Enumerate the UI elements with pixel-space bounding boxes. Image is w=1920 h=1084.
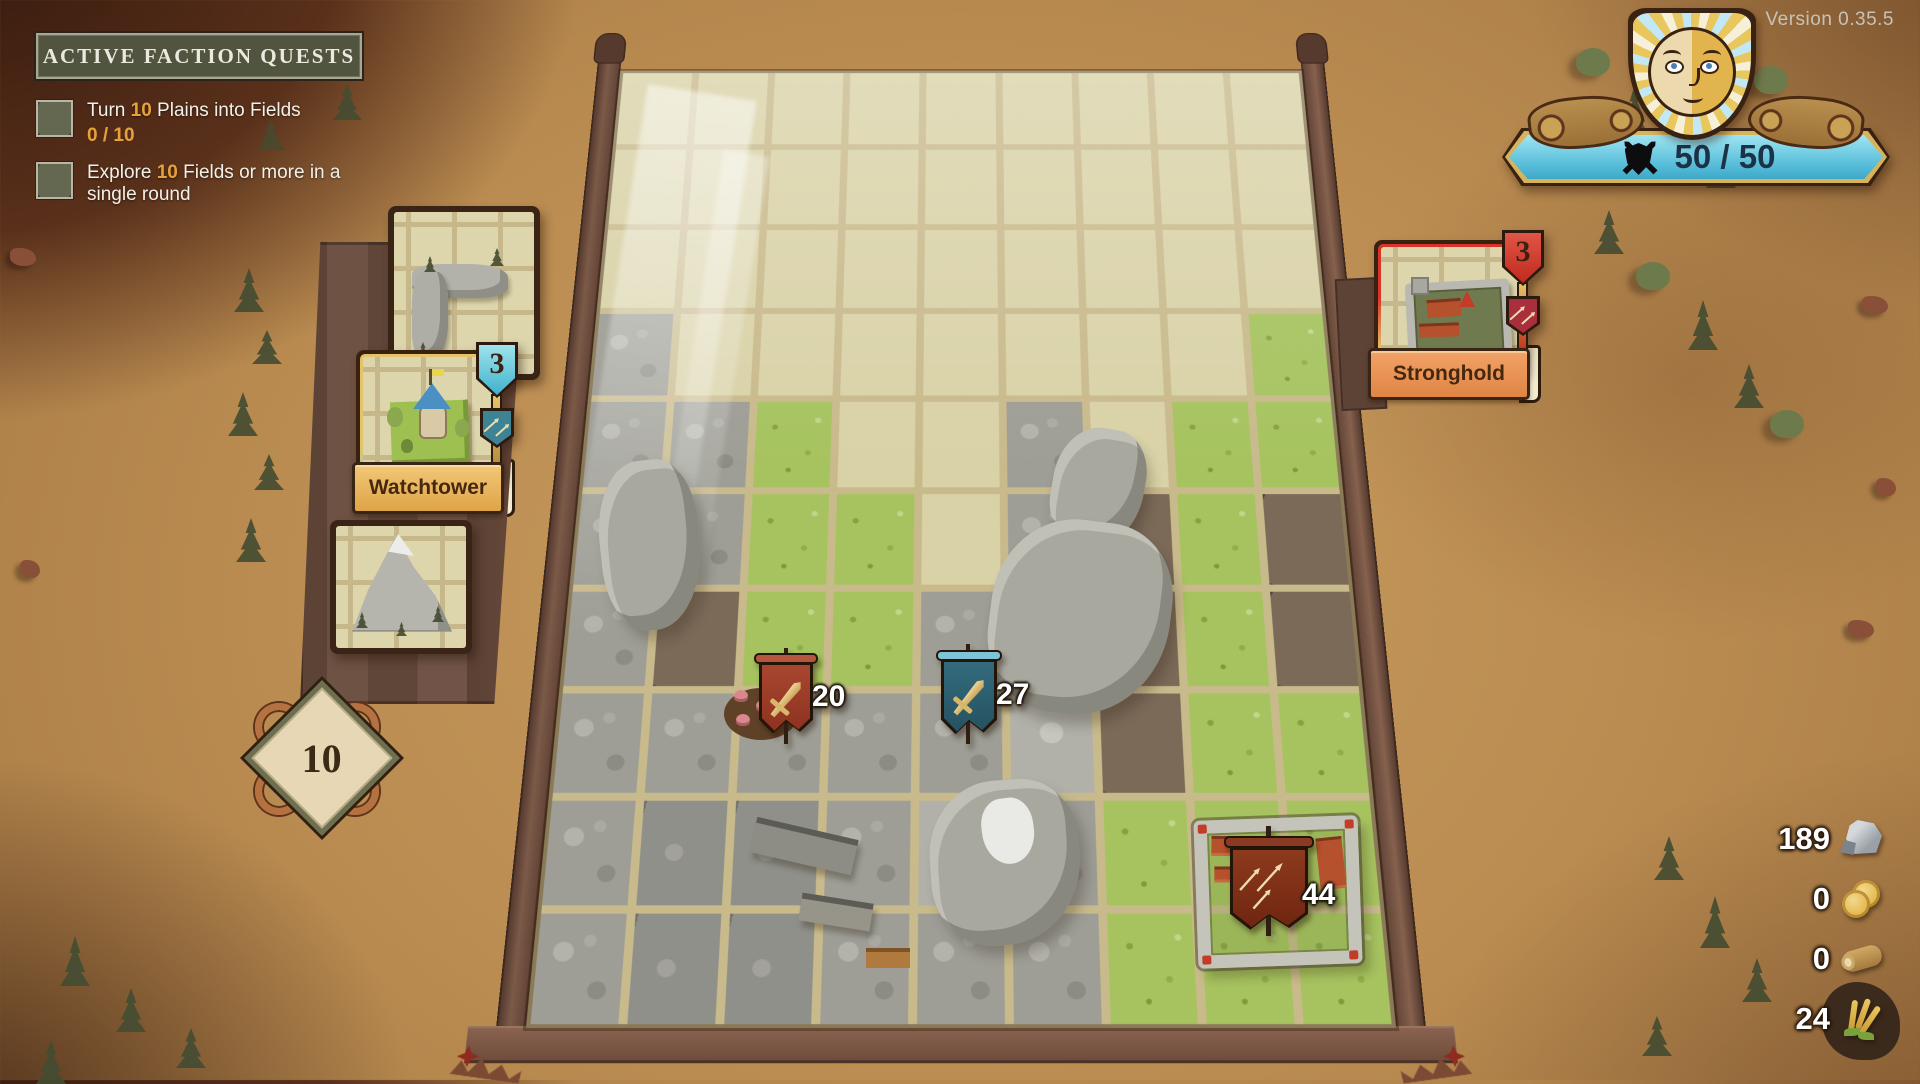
board-tile-empty[interactable] <box>1154 73 1228 144</box>
hp-value: 50 / 50 <box>1675 138 1776 176</box>
board-tile-empty[interactable] <box>840 314 916 396</box>
mushroom <box>734 690 748 702</box>
tower-roof-art <box>413 383 451 409</box>
board-tile-empty[interactable] <box>1005 314 1081 396</box>
sword-icon <box>952 677 987 716</box>
board-tile-empty[interactable] <box>1168 314 1248 396</box>
castle-roof-art <box>1419 322 1459 337</box>
board-tile-empty[interactable] <box>616 73 692 144</box>
board-tile-empty[interactable] <box>675 314 755 396</box>
board-tile-empty[interactable] <box>923 314 998 396</box>
board-tile-grass[interactable] <box>1107 914 1198 1025</box>
board-tile-empty[interactable] <box>1163 230 1241 308</box>
sun-face <box>1648 27 1736 117</box>
board-tile-empty[interactable] <box>1078 73 1151 144</box>
board-tile-village[interactable] <box>627 914 721 1025</box>
board-tile-rock[interactable] <box>553 693 644 792</box>
bush-art <box>401 439 413 453</box>
board-tile-empty[interactable] <box>762 230 838 308</box>
castle-roof-art <box>1426 298 1461 318</box>
fort-flag <box>1198 824 1207 833</box>
tree-decoration <box>1642 1016 1672 1056</box>
board-tile-empty[interactable] <box>1084 230 1160 308</box>
bush-decoration <box>1576 48 1610 76</box>
board-tile-empty[interactable] <box>758 314 836 396</box>
board-tile-rock[interactable] <box>542 801 635 906</box>
board-tile-grass[interactable] <box>1278 693 1369 792</box>
board-tile-grass[interactable] <box>747 494 829 584</box>
quest-checkbox-icon <box>36 100 73 137</box>
tree-decoration <box>116 988 146 1032</box>
board-tile-empty[interactable] <box>681 230 759 308</box>
rock-art <box>412 272 448 358</box>
tree-decoration <box>60 936 90 986</box>
resource-gold-value: 0 <box>1700 881 1830 917</box>
rock-decoration <box>1862 296 1888 314</box>
bush-art <box>490 248 504 266</box>
board-tile-empty[interactable] <box>922 402 999 488</box>
resource-gold: 0 <box>1700 878 1884 920</box>
tree-decoration <box>1654 836 1684 880</box>
resource-stone-value: 189 <box>1700 821 1830 857</box>
board-tile-empty[interactable] <box>925 150 997 224</box>
rock-decoration <box>10 248 36 266</box>
tree-decoration <box>236 518 266 562</box>
unit-strength: 27 <box>996 678 1029 712</box>
board-tile-empty[interactable] <box>771 73 844 144</box>
board-tile-empty[interactable] <box>1002 73 1073 144</box>
quest-text: Explore 10 Fields or more in a single ro… <box>87 162 387 207</box>
card-mountain-tile[interactable] <box>330 520 472 654</box>
board-tile-grass[interactable] <box>1103 801 1192 906</box>
resource-wood: 0 <box>1700 938 1884 980</box>
gold-coins-icon <box>1840 878 1884 920</box>
rock-decoration <box>1848 620 1874 638</box>
tree-decoration <box>1688 300 1718 350</box>
resource-wheat-value: 24 <box>1700 1001 1830 1037</box>
card-name-plate: Watchtower <box>352 462 504 514</box>
tree-decoration <box>234 268 264 312</box>
board-tile-rock[interactable] <box>530 914 626 1025</box>
sun-emblem-icon <box>1628 8 1756 140</box>
board-tile-dirt[interactable] <box>1263 494 1349 584</box>
unit-strength: 44 <box>1302 878 1335 912</box>
resource-wood-value: 0 <box>1700 941 1830 977</box>
bush-art <box>387 407 403 427</box>
board-tile-empty[interactable] <box>1230 73 1306 144</box>
arrow-icon <box>1251 887 1273 910</box>
board-tile-empty[interactable] <box>843 230 917 308</box>
board-tile-empty[interactable] <box>838 402 916 488</box>
quest-progress: 0 / 10 <box>87 125 301 147</box>
board-tile-empty[interactable] <box>767 150 841 224</box>
deck-count: 10 <box>302 735 342 782</box>
board-tile-grass[interactable] <box>1189 693 1278 792</box>
board-tile-empty[interactable] <box>1086 314 1164 396</box>
quest-item: Explore 10 Fields or more in a single ro… <box>36 162 396 207</box>
board-tile-grass[interactable] <box>1178 494 1262 584</box>
fort-flag <box>1202 955 1211 964</box>
board-tile-empty[interactable] <box>846 150 919 224</box>
board-tile-grass[interactable] <box>1183 591 1269 685</box>
tree-decoration <box>252 330 282 364</box>
board-tile-empty[interactable] <box>1004 230 1078 308</box>
board-tile-empty[interactable] <box>1242 230 1322 308</box>
board-tile-dirt[interactable] <box>1270 591 1358 685</box>
board-tile-dirt[interactable] <box>1099 693 1185 792</box>
board-tile-village[interactable] <box>724 914 815 1025</box>
card-name-plate: Stronghold <box>1368 348 1530 400</box>
quest-item: Turn 10 Plains into Fields 0 / 10 <box>36 100 396 147</box>
arrow-icon <box>1255 861 1285 893</box>
rock-decoration <box>20 560 40 578</box>
castle-turret-art <box>1411 277 1429 295</box>
quest-panel-title: ACTIVE FACTION QUESTS <box>36 33 362 79</box>
quest-text: Turn 10 Plains into Fields <box>87 100 301 122</box>
resource-stone: 189 <box>1700 818 1884 860</box>
tree-decoration <box>254 454 284 490</box>
board-tile-empty[interactable] <box>688 150 764 224</box>
version-label: Version 0.35.5 <box>1766 9 1894 31</box>
wood-log-icon <box>1840 938 1884 980</box>
tree-decoration <box>1734 364 1764 408</box>
sword-icon <box>769 679 804 718</box>
bush-decoration <box>1770 410 1804 438</box>
board-bottom-rail <box>464 1026 1458 1063</box>
board-tile-empty[interactable] <box>1081 150 1155 224</box>
unit-banner-red[interactable]: 20 <box>748 642 868 757</box>
board-tile-grass[interactable] <box>1172 402 1254 488</box>
board-tile-village[interactable] <box>636 801 727 906</box>
board-corner-post <box>593 33 627 64</box>
rock-decoration <box>1876 478 1896 496</box>
board-tile-empty[interactable] <box>922 494 1001 584</box>
board-tile-grass[interactable] <box>834 494 914 584</box>
deck-counter[interactable]: 10 <box>247 683 387 823</box>
board-tile-empty[interactable] <box>609 150 687 224</box>
board-tile-grass[interactable] <box>1256 402 1340 488</box>
board-tile-rock[interactable] <box>645 693 734 792</box>
tree-decoration <box>1594 210 1624 254</box>
board-tile-empty[interactable] <box>1158 150 1234 224</box>
unit-banner-blue[interactable]: 27 <box>928 640 1048 755</box>
bush-art <box>455 419 469 437</box>
village-crates <box>866 948 910 968</box>
board-tile-empty[interactable] <box>926 73 996 144</box>
board-tile-empty[interactable] <box>849 73 920 144</box>
board-tile-empty[interactable] <box>694 73 768 144</box>
tree-decoration <box>228 392 258 436</box>
board-tile-empty[interactable] <box>1003 150 1076 224</box>
board-tile-empty[interactable] <box>924 230 997 308</box>
shield-crossed-swords-icon <box>1617 137 1661 177</box>
board-tile-grass[interactable] <box>753 402 833 488</box>
card-watchtower[interactable]: 3 <box>356 350 502 480</box>
board-tile-grass[interactable] <box>1249 314 1331 396</box>
bush-decoration <box>1636 262 1670 290</box>
board-tile-empty[interactable] <box>1236 150 1314 224</box>
resource-wheat: 24 <box>1700 998 1884 1040</box>
quest-checkbox-icon <box>36 162 73 199</box>
board-corner-post <box>1295 33 1329 64</box>
tree-decoration <box>176 1028 206 1068</box>
board-tile-rock[interactable] <box>592 314 674 396</box>
unit-banner-fort[interactable]: 44 <box>1222 826 1362 956</box>
unit-strength: 20 <box>812 680 845 714</box>
tree-decoration <box>36 1040 66 1084</box>
tower-flag-art <box>432 369 444 376</box>
bush-decoration <box>1754 66 1788 94</box>
wheat-icon <box>1840 998 1884 1040</box>
stone-icon <box>1840 818 1884 860</box>
board-tile-empty[interactable] <box>600 230 680 308</box>
